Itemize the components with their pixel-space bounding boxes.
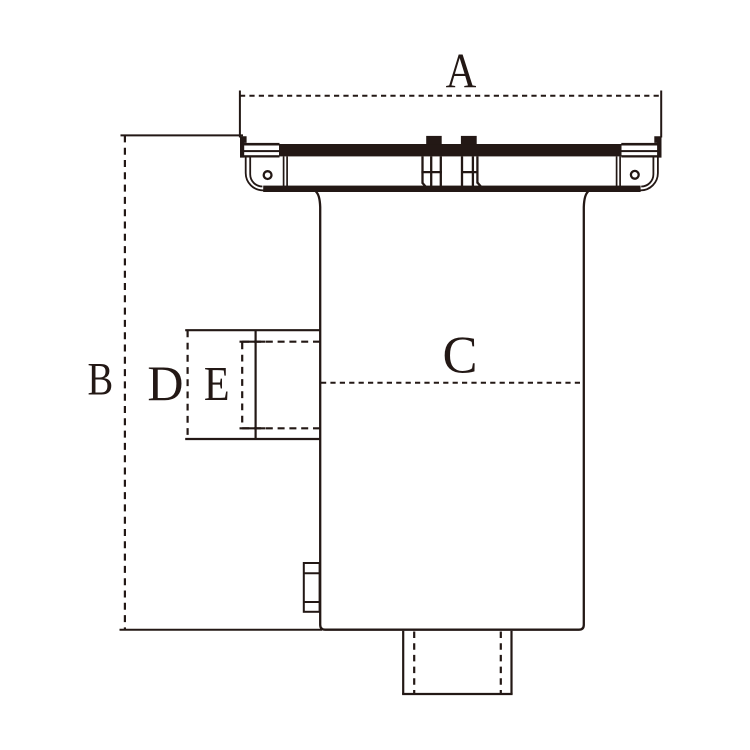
svg-text:C: C (442, 326, 477, 384)
svg-text:E: E (204, 356, 230, 411)
svg-text:B: B (87, 354, 113, 405)
svg-text:D: D (147, 355, 183, 411)
svg-text:A: A (446, 44, 477, 99)
